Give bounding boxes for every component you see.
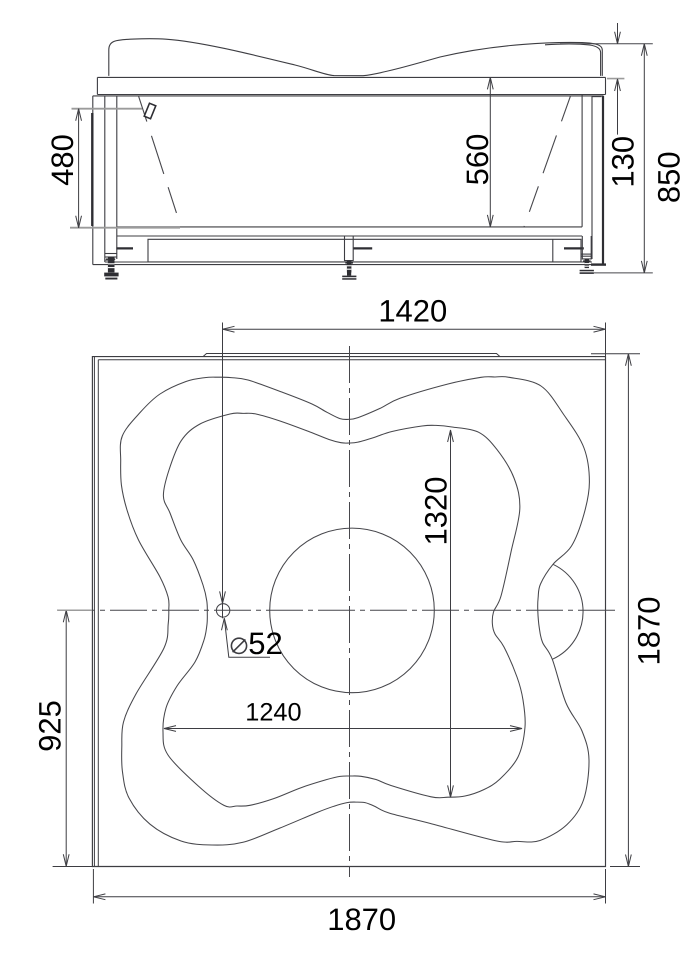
svg-text:1320: 1320: [419, 477, 454, 546]
svg-text:52: 52: [248, 626, 282, 661]
svg-text:130: 130: [605, 136, 640, 188]
svg-text:925: 925: [32, 700, 67, 752]
svg-text:1870: 1870: [327, 902, 396, 937]
svg-text:1240: 1240: [245, 698, 301, 726]
svg-text:1870: 1870: [632, 597, 667, 666]
svg-text:1420: 1420: [378, 294, 447, 329]
svg-text:560: 560: [460, 134, 495, 186]
svg-text:850: 850: [651, 151, 686, 203]
svg-text:480: 480: [45, 134, 80, 186]
